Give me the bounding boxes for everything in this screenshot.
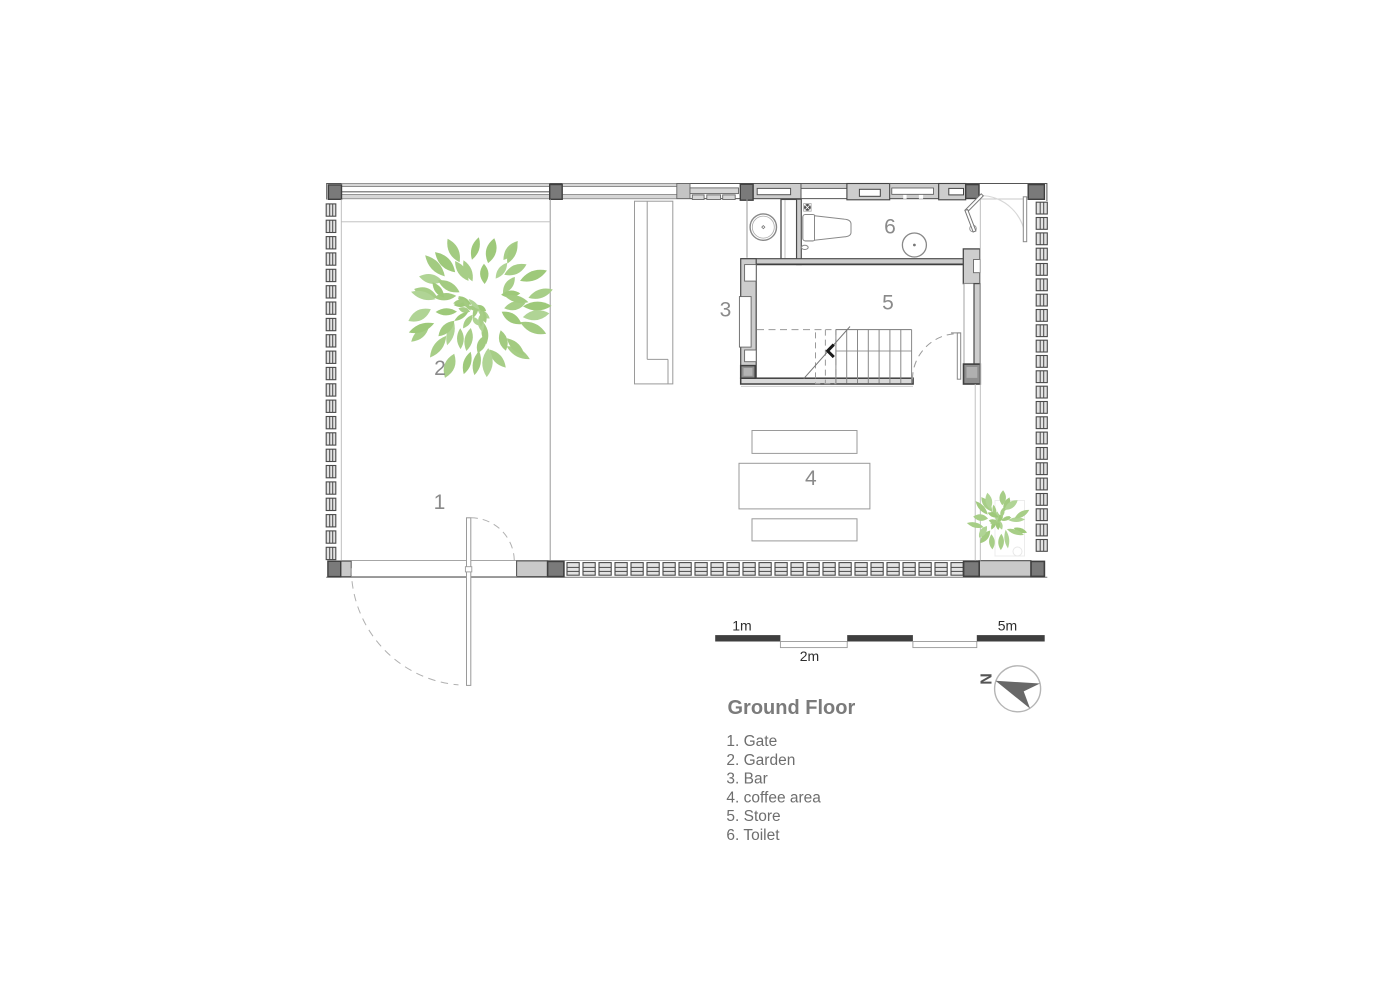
svg-text:1m: 1m — [732, 618, 751, 634]
svg-text:3: 3 — [720, 299, 732, 322]
svg-text:1: 1 — [434, 491, 446, 514]
svg-text:N: N — [979, 673, 996, 685]
svg-text:1. Gate: 1. Gate — [726, 733, 777, 750]
svg-text:6. Toilet: 6. Toilet — [726, 827, 780, 844]
svg-text:2m: 2m — [800, 648, 819, 664]
svg-text:3. Bar: 3. Bar — [726, 771, 767, 788]
svg-text:4. coffee area: 4. coffee area — [726, 789, 821, 806]
svg-text:4: 4 — [805, 467, 817, 490]
svg-text:2. Garden: 2. Garden — [726, 752, 795, 769]
svg-text:5: 5 — [882, 292, 894, 315]
svg-text:2: 2 — [434, 357, 446, 380]
svg-text:5m: 5m — [998, 618, 1017, 634]
svg-text:6: 6 — [884, 216, 896, 239]
svg-text:Ground Floor: Ground Floor — [728, 697, 856, 719]
svg-text:5. Store: 5. Store — [726, 808, 780, 825]
